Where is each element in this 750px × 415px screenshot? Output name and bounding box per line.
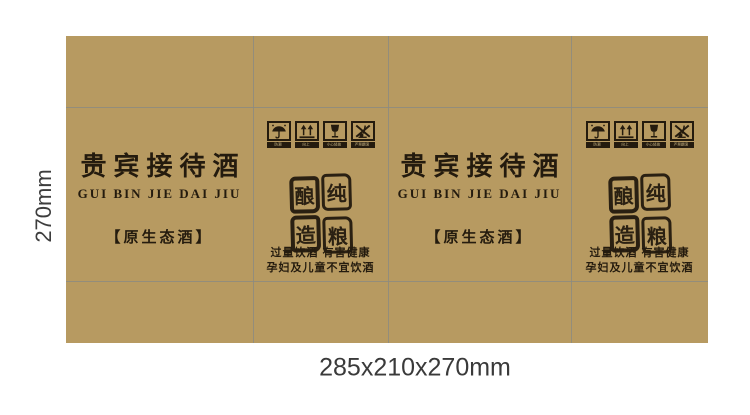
warning-line-1: 过量饮酒 有害健康 xyxy=(571,246,708,261)
keep-dry-icon: 防潮 xyxy=(267,121,291,148)
keep-dry-icon: 防潮 xyxy=(586,121,610,148)
seal-char: 酿 xyxy=(608,176,639,214)
no-rolling-icon: 严禁翻滚 xyxy=(670,121,694,148)
box-size-dimension-label: 285x210x270mm xyxy=(319,354,511,383)
kraft-box-dieline: 贵宾接待酒 GUI BIN JIE DAI JIU 【原生态酒】 防潮 xyxy=(66,36,708,343)
brand-pinyin: GUI BIN JIE DAI JIU xyxy=(388,186,571,202)
seal-char: 纯 xyxy=(321,173,352,211)
alcohol-warning: 过量饮酒 有害健康 孕妇及儿童不宜饮酒 xyxy=(253,246,388,276)
alcohol-warning: 过量饮酒 有害健康 孕妇及儿童不宜饮酒 xyxy=(571,246,708,276)
side-panel-2: 防潮 向上 小心轻放 xyxy=(571,36,708,343)
brand-block: 贵宾接待酒 GUI BIN JIE DAI JIU xyxy=(388,146,571,202)
this-way-up-icon: 向上 xyxy=(614,121,638,148)
fragile-icon: 小心轻放 xyxy=(323,121,347,148)
pure-grain-seal: 酿 纯 造 粮 xyxy=(289,175,353,241)
warning-line-2: 孕妇及儿童不宜饮酒 xyxy=(253,261,388,276)
packaging-dieline-mockup: 贵宾接待酒 GUI BIN JIE DAI JIU 【原生态酒】 防潮 xyxy=(0,0,750,415)
packaging-icons-row: 防潮 向上 小心轻放 xyxy=(267,121,375,148)
warning-line-1: 过量饮酒 有害健康 xyxy=(253,246,388,261)
front-panel-2: 贵宾接待酒 GUI BIN JIE DAI JIU 【原生态酒】 xyxy=(388,36,571,343)
pure-grain-seal: 酿 纯 造 粮 xyxy=(608,175,672,241)
seal-char: 纯 xyxy=(640,173,671,211)
brand-block: 贵宾接待酒 GUI BIN JIE DAI JIU xyxy=(66,146,253,202)
seal-char: 酿 xyxy=(289,176,320,214)
tagline: 【原生态酒】 xyxy=(388,226,571,247)
fragile-icon: 小心轻放 xyxy=(642,121,666,148)
brand-pinyin: GUI BIN JIE DAI JIU xyxy=(66,186,253,202)
packaging-icons-row: 防潮 向上 小心轻放 xyxy=(586,121,694,148)
height-dimension-label: 270mm xyxy=(31,169,57,242)
brand-title: 贵宾接待酒 xyxy=(388,146,571,183)
warning-line-2: 孕妇及儿童不宜饮酒 xyxy=(571,261,708,276)
brand-title: 贵宾接待酒 xyxy=(66,146,253,183)
side-panel-1: 防潮 向上 小心轻放 xyxy=(253,36,388,343)
tagline: 【原生态酒】 xyxy=(66,226,253,247)
front-panel-1: 贵宾接待酒 GUI BIN JIE DAI JIU 【原生态酒】 xyxy=(66,36,253,343)
no-rolling-icon: 严禁翻滚 xyxy=(351,121,375,148)
this-way-up-icon: 向上 xyxy=(295,121,319,148)
